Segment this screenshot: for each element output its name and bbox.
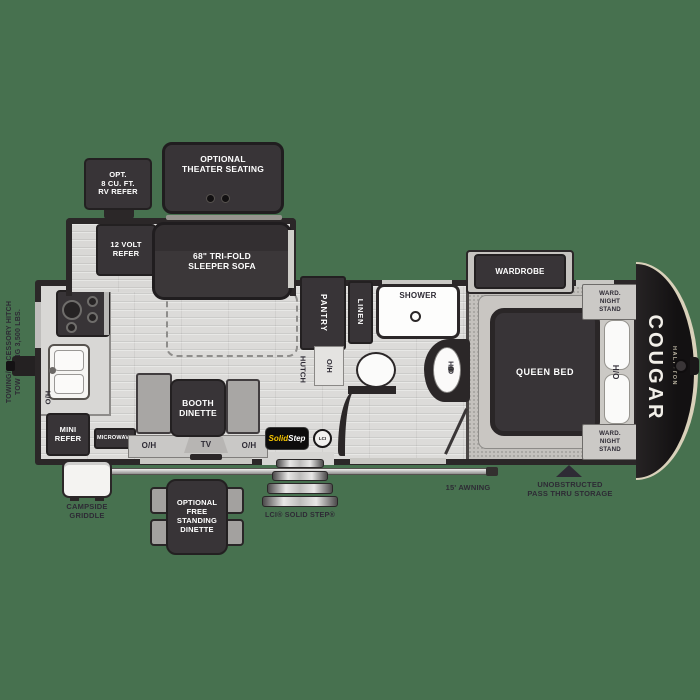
griddle-label: CAMPSIDE GRIDDLE <box>40 501 134 521</box>
sink-basin-top <box>54 350 84 371</box>
slide-travel-outline <box>166 291 298 357</box>
twelve-volt-refrigerator: 12 VOLT REFER <box>96 224 156 276</box>
sink-basin-bottom <box>54 374 84 394</box>
booth-bench-left <box>136 373 172 434</box>
mini-refrigerator: MINI REFER <box>46 413 90 456</box>
entry-step-4 <box>262 496 338 507</box>
optional-rv-refrigerator: OPT. 8 CU. FT. RV REFER <box>84 158 152 210</box>
booth-bench-right <box>226 379 260 434</box>
window-bottom-hall <box>350 458 446 464</box>
faucet <box>49 367 56 374</box>
passthru-arrow <box>556 465 582 477</box>
passthru-label: UNOBSTRUCTED PASS THRU STORAGE <box>508 479 632 499</box>
kingpin-nub <box>690 357 699 375</box>
outside-griddle <box>62 460 112 498</box>
refrigerator-tab <box>104 210 134 219</box>
towing-hitch-label: TOWING/ACCESSORY HITCH TOW RATING 3,500 … <box>6 267 24 437</box>
floorplan-canvas: TOWING/ACCESSORY HITCH TOW RATING 3,500 … <box>0 0 700 700</box>
theater-slide-rail <box>166 215 282 220</box>
linen-label: LINEN <box>354 284 366 340</box>
wardrobe-cabinet: WARDROBE <box>474 254 566 289</box>
slide-end-window <box>288 230 294 288</box>
entry-step-2 <box>272 471 328 481</box>
steps-label: LCI® SOLID STEP® <box>252 508 348 520</box>
cupholder-right <box>221 194 230 203</box>
oh-label-bath: O/H <box>448 353 459 383</box>
booth-dinette-table: BOOTH DINETTE <box>170 379 226 437</box>
badge-solid-text: Solid <box>269 434 289 443</box>
oh-label-booth-left: O/H <box>134 440 164 451</box>
queen-bed: QUEEN BED <box>490 308 600 436</box>
pantry-label: PANTRY <box>317 278 329 348</box>
burner-small-3 <box>66 322 77 333</box>
sleeper-sofa: 68" TRI-FOLD SLEEPER SOFA <box>152 222 292 300</box>
toilet <box>356 352 396 388</box>
nightstand-bottom: WARD. NIGHT STAND <box>582 424 638 460</box>
cooktop-landing <box>104 292 109 335</box>
entry-step-3 <box>267 483 333 494</box>
oh-label-booth-right: O/H <box>234 440 264 451</box>
theater-seating: OPTIONAL THEATER SEATING <box>162 142 284 214</box>
oh-label-kitchen: O/H <box>43 383 54 413</box>
solid-step-badge: SolidStep <box>265 427 309 450</box>
burner-small-2 <box>87 312 98 323</box>
cupholder-left <box>206 194 215 203</box>
nightstand-top: WARD. NIGHT STAND <box>582 284 638 320</box>
hutch-label: HUTCH <box>298 348 309 392</box>
burner-large <box>62 300 82 320</box>
lci-logo: LCI <box>313 429 332 448</box>
badge-step-text: Step <box>288 434 305 443</box>
oh-label-bedroom: O/H <box>611 354 623 390</box>
rear-hitch-tip <box>6 361 15 371</box>
oh-label-hutch: O/H <box>324 351 334 381</box>
tv-label: TV <box>184 440 228 450</box>
shower-label: SHOWER <box>376 291 460 301</box>
awning-end-right <box>486 467 498 476</box>
entry-step-1 <box>276 459 324 468</box>
freestanding-dinette-table: OPTIONAL FREE STANDING DINETTE <box>166 479 228 555</box>
shower-drain <box>410 311 421 322</box>
kingpin <box>674 359 688 373</box>
awning-label: 15' AWNING <box>428 482 508 494</box>
burner-small-1 <box>87 296 98 307</box>
tv-stand <box>190 454 222 460</box>
brand-logo: COUGAR <box>645 293 665 443</box>
